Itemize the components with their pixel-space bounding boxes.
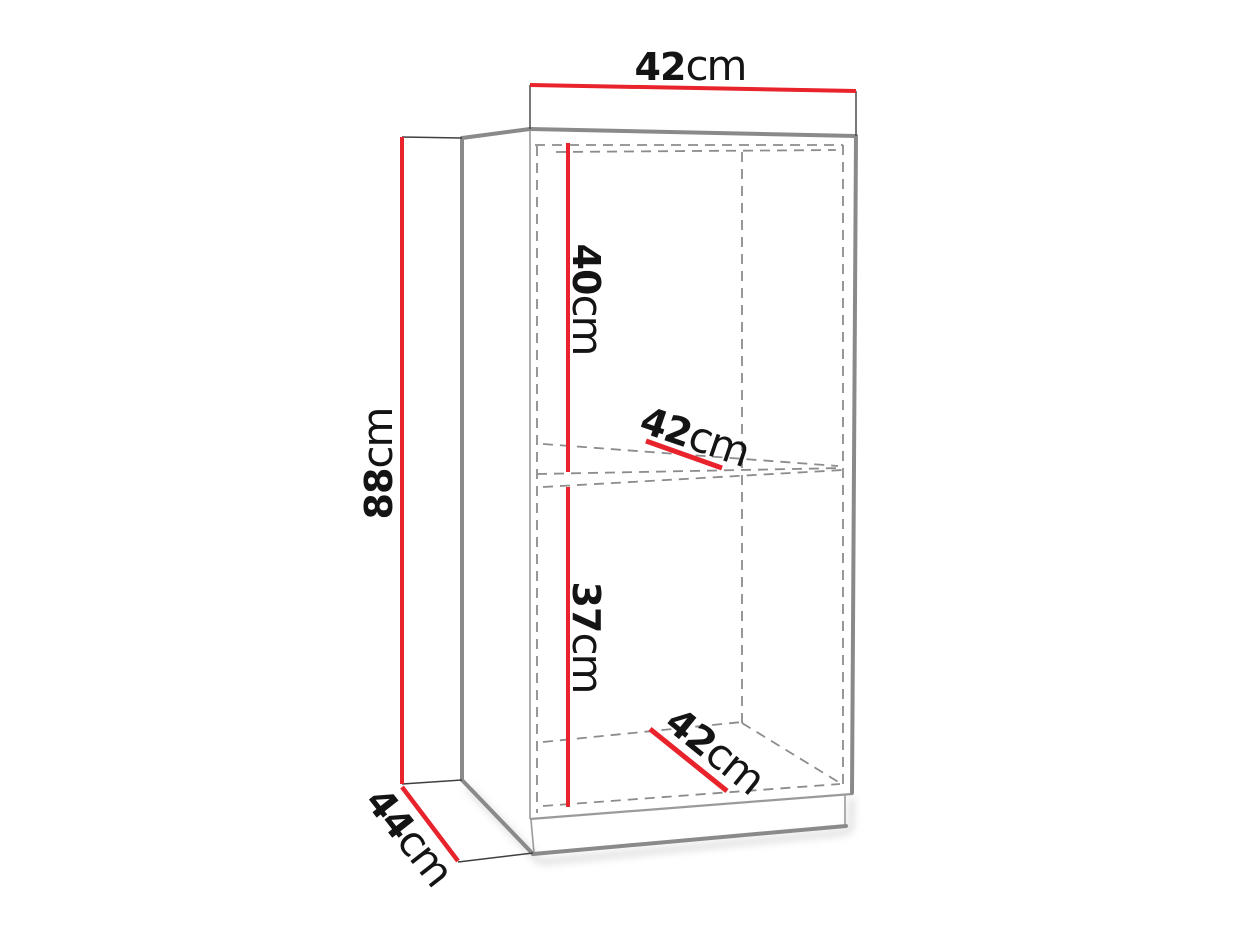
bottom-front-edge: [543, 784, 840, 806]
diagram-canvas: 42cm 88cm 40cm 42cm 37cm 42cm 44cm: [0, 0, 1237, 928]
shadow-right-edge: [850, 798, 852, 832]
outline-right-edge: [852, 136, 856, 793]
interior-top-back-edge: [556, 150, 836, 152]
shelf-front-top-edge: [537, 468, 843, 474]
shadow-bottom-edge: [540, 832, 848, 862]
cabinet-outline: [462, 129, 856, 854]
label-width-top: 42cm: [635, 41, 746, 90]
plinth-left-edge: [531, 820, 534, 853]
label-height-left: 88cm: [353, 409, 402, 520]
outline-bottom-left-diagonal: [462, 780, 533, 854]
label-upper-compartment-height: 40cm: [563, 244, 612, 355]
tick-depth-end: [458, 853, 533, 862]
outline-top-left-edge: [462, 129, 530, 138]
cabinet-dimension-diagram: 42cm 88cm 40cm 42cm 37cm 42cm 44cm: [0, 0, 1237, 928]
label-lower-compartment-height: 37cm: [563, 582, 612, 693]
outline-top-front-edge: [530, 129, 856, 136]
dimension-labels: 42cm 88cm 40cm 42cm 37cm 42cm 44cm: [353, 41, 774, 895]
tick-height-top: [402, 137, 462, 138]
tick-height-bottom: [402, 780, 462, 784]
front-bottom-edge: [530, 794, 852, 819]
label-upper-shelf-depth: 42cm: [634, 394, 755, 476]
